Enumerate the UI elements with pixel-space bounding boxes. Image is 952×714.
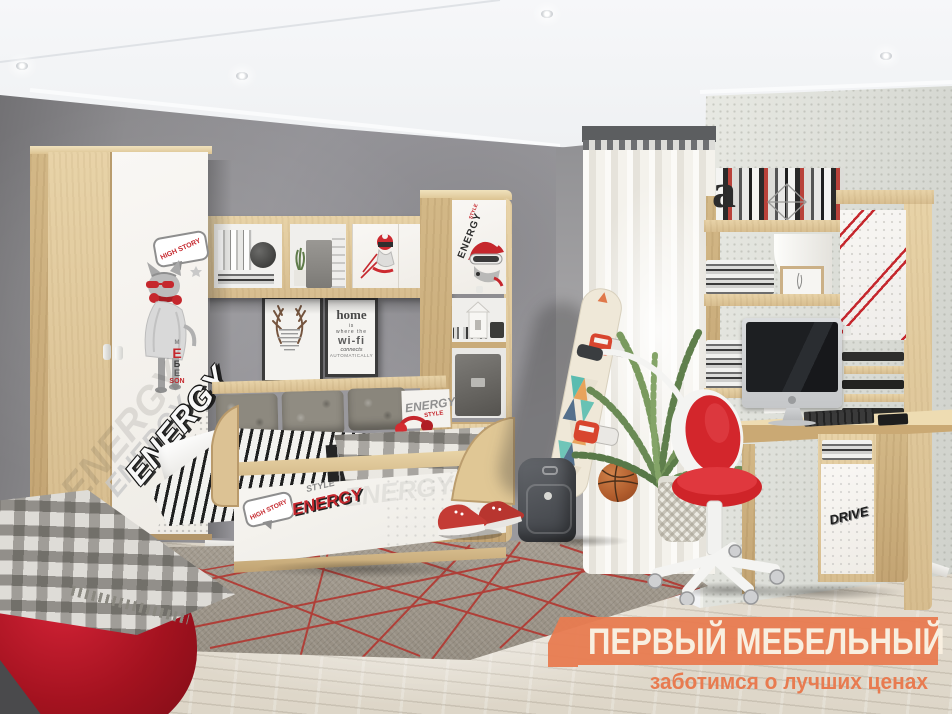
wall-shelf: ENERGY STYLE <box>206 216 452 298</box>
skier-print <box>359 228 401 284</box>
black-notebook <box>878 413 909 426</box>
tray <box>842 352 904 361</box>
ceiling-spotlight <box>541 10 553 18</box>
tray <box>844 394 904 402</box>
striped-door-handle <box>843 326 851 336</box>
frame-sketch <box>783 269 815 293</box>
hutch-shelf-board <box>704 220 850 232</box>
shelf-cell-boxes <box>290 224 346 288</box>
ceiling-spotlight <box>880 52 892 60</box>
wire-decor <box>766 182 808 222</box>
shelf-wall-shadow <box>210 298 450 314</box>
letter-a-decor: a <box>712 168 736 216</box>
striped-door <box>840 210 906 340</box>
cabinet-white-door: ENERGY STYLE <box>452 200 506 294</box>
kids-room-photo: home is where the wi-fi connects AUTOMAT… <box>0 0 952 714</box>
backpack-handle <box>542 466 558 475</box>
goggle-guy-print <box>464 226 508 288</box>
drawer-bubble-text: HIGH STORY <box>249 498 288 521</box>
pompom-decor <box>250 242 276 268</box>
banner-title: ПЕРВЫЙ МЕБЕЛЬНЫЙ <box>588 621 945 663</box>
banner-subtitle: заботимся о лучших ценах <box>615 669 929 695</box>
bed-left-guard <box>200 404 242 508</box>
ceiling-spotlight <box>16 62 28 70</box>
wifi-poster-line4: wi-fi <box>328 335 375 347</box>
folders <box>332 232 345 288</box>
cabinet-niche-books <box>822 440 872 460</box>
tag-letter: E <box>168 346 186 360</box>
storage-box <box>306 240 332 288</box>
ergo-chair <box>645 375 805 605</box>
cabinet-door-knob <box>476 286 483 293</box>
banner-logo-one <box>546 615 582 667</box>
red-sneakers <box>434 486 524 542</box>
ceiling-spotlight <box>236 72 248 80</box>
tray <box>842 380 904 389</box>
hutch-cabinet-top <box>836 190 934 204</box>
desk-cabinet-side <box>872 434 908 582</box>
hutch-right-panel <box>904 190 932 610</box>
wardrobe-handle <box>103 344 111 360</box>
house-ornament <box>466 300 490 340</box>
box-label-plate <box>471 378 485 387</box>
backpack-logo <box>544 492 552 500</box>
tray <box>844 366 904 374</box>
desk-clock <box>490 322 504 338</box>
wardrobe-handle <box>115 346 123 360</box>
hutch-shelf-board2 <box>704 294 850 306</box>
wardrobe-side-panel <box>30 150 48 538</box>
watermark-banner: ПЕРВЫЙ МЕБЕЛЬНЫЙ заботимся о лучших цена… <box>0 605 952 705</box>
headboard-cushion <box>281 390 344 436</box>
cabinet-open-cell2 <box>452 348 506 418</box>
wifi-poster-line6: AUTOMATICALLY <box>328 353 375 358</box>
desk-cabinet: DRIVE <box>818 434 908 582</box>
bed-floor-shadow <box>210 556 520 582</box>
drawer-speech-bubble: HIGH STORY <box>241 490 296 529</box>
magazine-stack <box>706 260 774 294</box>
cabinet-open-cell <box>452 298 506 342</box>
drive-door: DRIVE <box>821 464 874 574</box>
fabric-box <box>455 354 501 416</box>
